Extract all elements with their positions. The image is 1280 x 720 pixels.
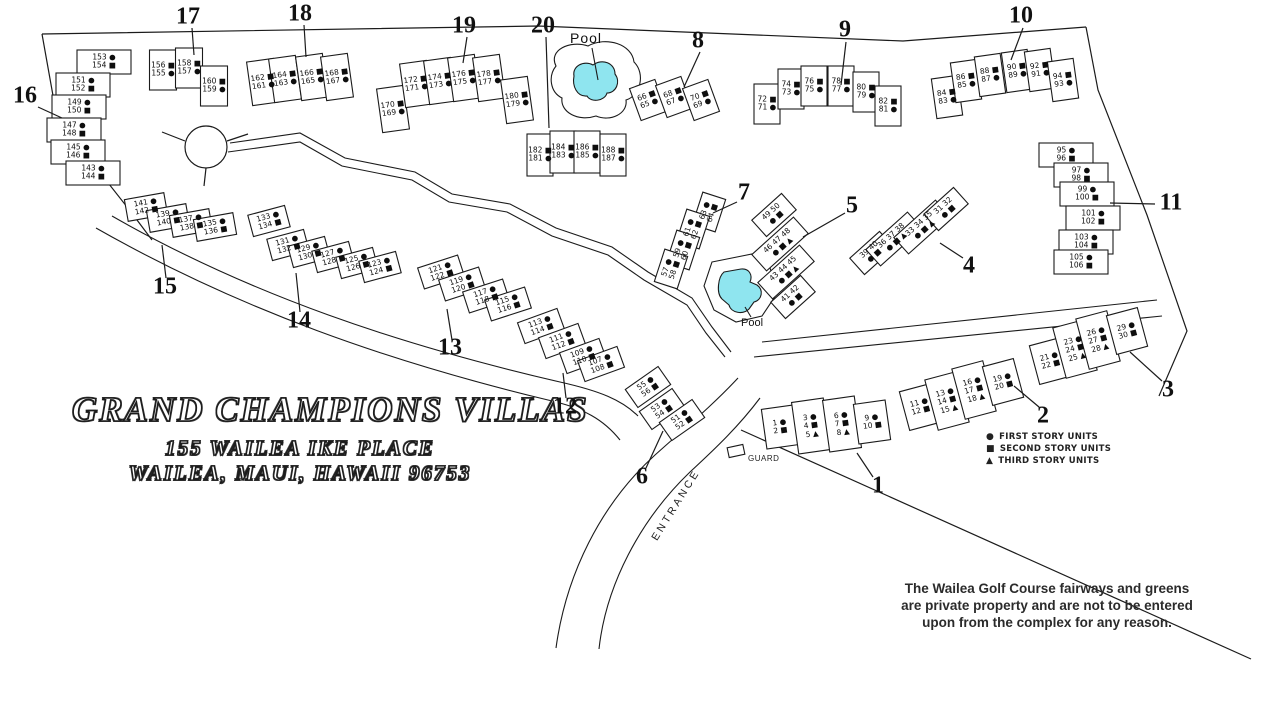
building-9-unit-box xyxy=(801,66,827,106)
building-8-unit-box xyxy=(682,79,719,120)
building-16-unit-box xyxy=(56,73,110,97)
building-11-callout-line xyxy=(1110,203,1155,204)
site-map-page: { "title": { "name": "GRAND CHAMPIONS VI… xyxy=(0,0,1280,720)
building-9-unit-box xyxy=(778,69,804,109)
building-11-unit-box xyxy=(1066,206,1120,230)
building-1-unit-box xyxy=(853,400,890,444)
building-17-unit-box xyxy=(150,50,177,90)
building-17-unit-box xyxy=(201,66,228,106)
building-20-unit-box xyxy=(574,131,600,173)
building-19-unit-box xyxy=(473,54,506,101)
building-16-unit-box xyxy=(77,50,131,74)
building-8-callout-line xyxy=(684,52,700,87)
building-10-unit-box xyxy=(974,53,1005,96)
building-12-callout-line xyxy=(563,373,566,398)
building-20-unit-box xyxy=(527,134,553,176)
roundabout xyxy=(162,126,248,186)
building-20-unit-box xyxy=(550,131,576,173)
building-5-callout-line xyxy=(803,213,845,237)
building-14-unit-box xyxy=(248,205,290,236)
building-9-unit-box xyxy=(754,84,780,124)
building-9-unit-box xyxy=(828,66,854,106)
building-4-callout-line xyxy=(940,243,963,258)
building-14-callout-line xyxy=(296,273,300,312)
building-1-callout-line xyxy=(857,453,873,477)
building-11-unit-box xyxy=(1054,250,1108,274)
building-13-callout-line xyxy=(447,309,452,340)
building-16-unit-box xyxy=(47,118,101,142)
guard-shack xyxy=(727,444,745,457)
building-10-unit-box xyxy=(1047,58,1078,101)
building-11-unit-box xyxy=(1060,182,1114,206)
building-16-unit-box xyxy=(66,161,120,185)
lower-pool-water xyxy=(718,269,761,313)
building-18-unit-box xyxy=(321,53,354,100)
building-20-callout-line xyxy=(546,37,549,128)
building-19-unit-box xyxy=(501,76,534,123)
building-20-unit-box xyxy=(600,134,626,176)
building-16-unit-box xyxy=(52,95,106,119)
building-7-unit-box xyxy=(654,249,687,289)
building-3-callout-line xyxy=(1130,352,1162,381)
building-16-unit-box xyxy=(51,140,105,164)
building-9-unit-box xyxy=(875,86,901,126)
building-15-callout-line xyxy=(162,245,166,278)
site-map-drawing xyxy=(0,0,1280,720)
building-17-unit-box xyxy=(176,48,203,88)
